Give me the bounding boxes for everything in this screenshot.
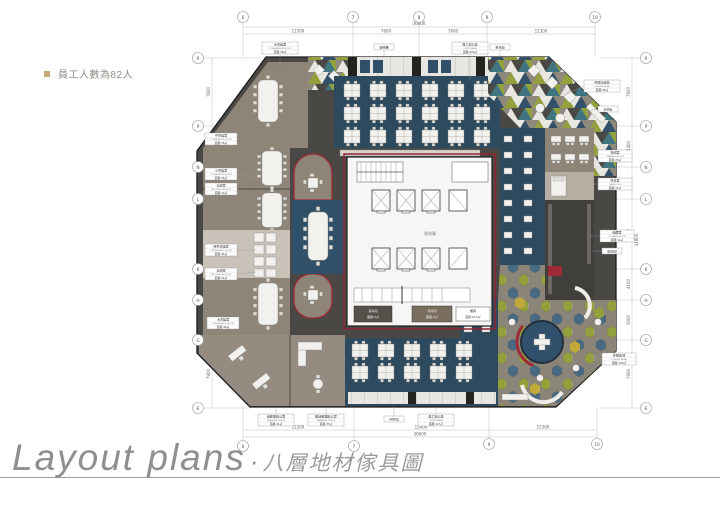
room-label-manager1: 總經理辦公室 MANAGER OFFICE 面積:41㎡ bbox=[258, 413, 294, 426]
room-label-training: 培訓室 TRAINING ROOM 面積:27㎡ bbox=[598, 149, 632, 162]
red-sofa bbox=[548, 266, 562, 276]
svg-text:面積:37㎡: 面積:37㎡ bbox=[320, 422, 333, 426]
svg-text:12300: 12300 bbox=[292, 29, 305, 34]
room-label-storage: 儲藏室 STORAGE ROOM 面積:11㎡ bbox=[600, 229, 634, 242]
slide-title: Layout plans·八層地材傢具圖 bbox=[12, 437, 424, 479]
svg-text:9: 9 bbox=[488, 442, 491, 448]
small-label-pantry-top: 茶水間 bbox=[490, 44, 510, 57]
room-label-conf-l2: 小會議室 CONFERENCE ROOM 面積:15㎡ bbox=[205, 167, 237, 180]
svg-text:面積:41㎡: 面積:41㎡ bbox=[270, 422, 283, 426]
svg-text:面積:117㎡: 面積:117㎡ bbox=[429, 422, 443, 426]
svg-text:10: 10 bbox=[592, 15, 598, 21]
svg-text:N: N bbox=[196, 165, 199, 171]
svg-text:洽談室: 洽談室 bbox=[216, 267, 225, 272]
svg-text:面積:15㎡: 面積:15㎡ bbox=[215, 176, 228, 180]
room-label-manager2: 副總經理辦公室 MANAGER OFFICE 面積:37㎡ bbox=[308, 413, 344, 426]
svg-text:7900: 7900 bbox=[206, 368, 211, 379]
top-locker-row bbox=[348, 57, 488, 76]
svg-text:儲藏室: 儲藏室 bbox=[612, 229, 621, 234]
svg-text:休息室: 休息室 bbox=[610, 177, 619, 182]
svg-text:E: E bbox=[645, 406, 648, 412]
svg-text:34800: 34800 bbox=[634, 233, 639, 246]
central-core: 電梯廳 茶水間 面積:9㎡ 清潔間 bbox=[344, 154, 495, 329]
title-english: Layout plans bbox=[12, 437, 246, 478]
svg-text:大會議室: 大會議室 bbox=[274, 41, 286, 46]
svg-text:員工辦公區: 員工辦公區 bbox=[428, 413, 443, 418]
svg-text:水吧台: 水吧台 bbox=[603, 106, 612, 111]
svg-text:面積:11.5㎡: 面積:11.5㎡ bbox=[466, 315, 481, 319]
room-label-bedroom: 休息室 BEDROOM 面積:15㎡ bbox=[598, 177, 632, 190]
title-chinese: 八層地材傢具圖 bbox=[263, 452, 424, 475]
svg-text:G: G bbox=[644, 338, 647, 344]
svg-text:3000: 3000 bbox=[626, 314, 631, 325]
svg-text:面積:27㎡: 面積:27㎡ bbox=[609, 158, 622, 162]
svg-text:員工辦公區: 員工辦公區 bbox=[462, 41, 477, 46]
floor-plan-drawing: 36600 12300 7600 7600 12300 12200 15000 … bbox=[0, 0, 720, 509]
slide-page: 員工人數為82人 bbox=[0, 0, 720, 509]
room-label-conf-l5: 洽談室 DISCUSSION ROOM 面積:12㎡ bbox=[205, 267, 237, 280]
svg-text:休閒區域: 休閒區域 bbox=[613, 352, 625, 357]
svg-text:8: 8 bbox=[418, 15, 421, 21]
svg-text:茶水間: 茶水間 bbox=[368, 308, 377, 313]
svg-text:10: 10 bbox=[594, 442, 600, 448]
svg-text:總經理辦公室: 總經理辦公室 bbox=[267, 413, 286, 418]
building: 電梯廳 茶水間 面積:9㎡ 清潔間 bbox=[197, 57, 616, 407]
svg-text:清潔間: 清潔間 bbox=[427, 308, 436, 313]
title-separator-dot: · bbox=[250, 446, 259, 476]
svg-text:休閒洽談區: 休閒洽談區 bbox=[594, 79, 609, 84]
storage-room bbox=[545, 200, 594, 300]
svg-text:大會議室: 大會議室 bbox=[217, 316, 229, 321]
room-label-conf-l6: 大會議室 CONFERENCE ROOM 面積:44㎡ bbox=[207, 316, 239, 329]
svg-text:N: N bbox=[644, 165, 647, 171]
svg-text:面積:130㎡: 面積:130㎡ bbox=[612, 361, 626, 365]
top-office-area bbox=[334, 76, 500, 148]
room-label-conf-l4: 特色會議室 CONFERENCE ROOM 面積:41㎡ bbox=[205, 243, 237, 256]
svg-text:E: E bbox=[197, 406, 200, 412]
service-room bbox=[452, 162, 488, 182]
svg-text:4400: 4400 bbox=[626, 140, 631, 151]
svg-text:小會議室: 小會議室 bbox=[215, 167, 227, 172]
training-room bbox=[545, 128, 594, 172]
room-label-office-top: 員工辦公區 OFFICE AREA 面積:240㎡ bbox=[452, 41, 488, 54]
svg-text:K: K bbox=[197, 267, 200, 273]
svg-text:面積:36㎡: 面積:36㎡ bbox=[274, 50, 287, 54]
small-label-lockers: 儲物櫃 bbox=[374, 44, 394, 58]
toilets bbox=[354, 286, 470, 304]
feature-conference-room bbox=[292, 200, 345, 274]
svg-text:茶水間: 茶水間 bbox=[495, 44, 504, 49]
svg-text:R: R bbox=[197, 56, 200, 62]
room-label-conf-l1: 中會議室 CONFERENCE ROOM 面積:15㎡ bbox=[205, 132, 237, 145]
svg-text:7600: 7600 bbox=[381, 29, 392, 34]
svg-text:中會議室: 中會議室 bbox=[215, 132, 227, 137]
svg-text:面積:240㎡: 面積:240㎡ bbox=[463, 50, 477, 54]
svg-text:培訓室: 培訓室 bbox=[610, 149, 619, 154]
svg-text:12300: 12300 bbox=[535, 29, 548, 34]
svg-text:面積:41㎡: 面積:41㎡ bbox=[215, 252, 228, 256]
svg-text:7600: 7600 bbox=[206, 86, 211, 97]
svg-text:H: H bbox=[196, 298, 199, 304]
svg-text:機房: 機房 bbox=[470, 308, 476, 313]
svg-text:儲物櫃: 儲物櫃 bbox=[379, 44, 388, 49]
room-label-leisure-tr: 休閒洽談區 LEISURE AREA 面積:95㎡ bbox=[584, 79, 620, 92]
east-booth-strip bbox=[500, 128, 545, 265]
svg-text:7900: 7900 bbox=[626, 368, 631, 379]
bedroom bbox=[545, 172, 594, 200]
svg-text:面積:95㎡: 面積:95㎡ bbox=[596, 88, 609, 92]
room-label-conf-tl: 大會議室 CONFERENCE ROOM 面積:36㎡ bbox=[262, 41, 298, 54]
svg-text:面積:12㎡: 面積:12㎡ bbox=[215, 276, 228, 280]
stairs bbox=[357, 162, 403, 182]
svg-text:G: G bbox=[196, 338, 199, 344]
svg-text:特色會議室: 特色會議室 bbox=[213, 243, 228, 248]
room-label-conf-l3: 洽談室 DISCUSSION ROOM 面積:12㎡ bbox=[205, 182, 237, 195]
svg-text:6: 6 bbox=[242, 15, 245, 21]
svg-text:9: 9 bbox=[486, 15, 489, 21]
svg-text:P: P bbox=[197, 124, 200, 130]
svg-text:4100: 4100 bbox=[626, 278, 631, 289]
svg-text:R: R bbox=[645, 56, 648, 62]
svg-text:H: H bbox=[644, 298, 647, 304]
room-label-leisure-br: 休閒區域 LEISURE AREA 面積:130㎡ bbox=[602, 352, 636, 365]
core-bottom-rooms: 茶水間 面積:9㎡ 清潔間 面積:9㎡ 機房 面積:11.5㎡ bbox=[354, 306, 490, 322]
lift-lobby-label: 電梯廳 bbox=[424, 230, 436, 236]
room-label-office-bottom: 員工辦公區 OFFICE AREA 面積:117㎡ bbox=[418, 413, 454, 426]
small-label-seats: 共88位 bbox=[384, 406, 404, 422]
svg-text:面積:15㎡: 面積:15㎡ bbox=[609, 186, 622, 190]
svg-text:面積:11㎡: 面積:11㎡ bbox=[611, 238, 624, 242]
svg-text:12300: 12300 bbox=[537, 425, 550, 430]
svg-text:7: 7 bbox=[352, 15, 355, 21]
svg-text:面積:12㎡: 面積:12㎡ bbox=[215, 191, 228, 195]
manager-offices bbox=[199, 335, 345, 406]
svg-text:7600: 7600 bbox=[448, 29, 459, 34]
svg-text:面積:9㎡: 面積:9㎡ bbox=[367, 314, 379, 319]
svg-text:洽談室: 洽談室 bbox=[216, 182, 225, 187]
svg-text:面積:9㎡: 面積:9㎡ bbox=[426, 314, 438, 319]
svg-text:副總經理辦公室: 副總經理辦公室 bbox=[315, 413, 337, 418]
svg-text:共88位: 共88位 bbox=[389, 416, 399, 421]
svg-text:7600: 7600 bbox=[626, 86, 631, 97]
svg-text:K: K bbox=[645, 267, 648, 273]
svg-text:開水間: 開水間 bbox=[607, 248, 616, 253]
svg-text:P: P bbox=[645, 124, 648, 130]
svg-text:36600: 36600 bbox=[414, 432, 427, 437]
svg-text:面積:44㎡: 面積:44㎡ bbox=[217, 325, 230, 329]
svg-text:面積:15㎡: 面積:15㎡ bbox=[215, 141, 228, 145]
corridor-cabinets bbox=[340, 150, 480, 156]
